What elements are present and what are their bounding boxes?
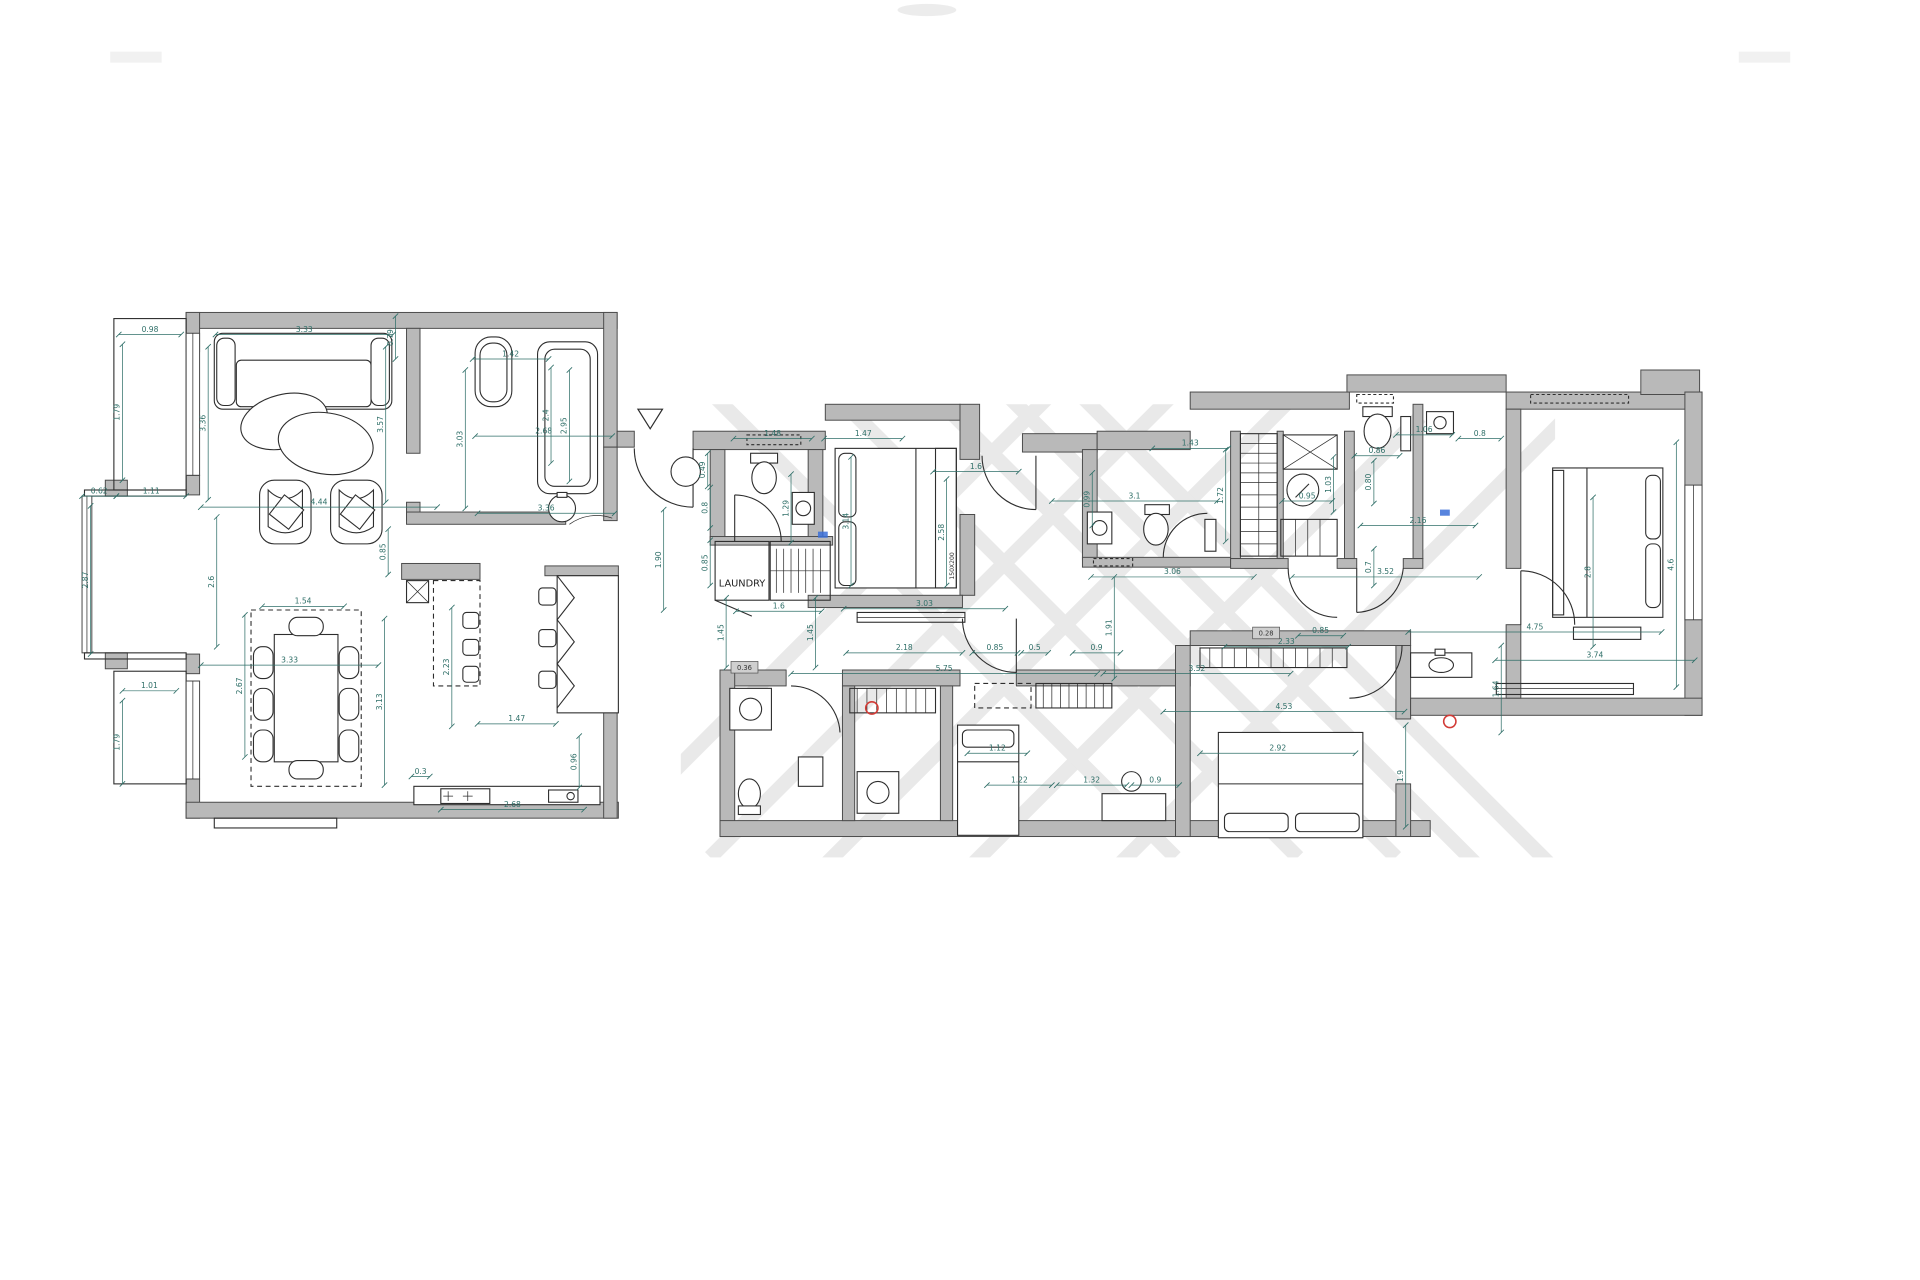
hanging-closet [770, 541, 830, 600]
dimension-label: 1.45 [806, 624, 815, 641]
wall-left-block-top [186, 312, 617, 328]
bar-stool [463, 666, 479, 682]
bar-stool [539, 630, 556, 647]
armchair [331, 480, 382, 544]
pillow [1646, 544, 1661, 608]
dimension-label: 3.52 [1189, 664, 1206, 673]
dimension-label: 0.49 [698, 461, 707, 478]
dimension-label: 2.95 [560, 417, 569, 434]
dimension-label: 3.33 [296, 325, 313, 334]
balcony-top-left [114, 319, 200, 490]
radiator [1401, 417, 1411, 451]
dining-chair [289, 617, 323, 635]
kitchen-sink [549, 790, 578, 802]
plan-label: 0.36 [737, 664, 752, 672]
dimension-label: 2.8 [1583, 566, 1592, 578]
plan-label: LAUNDRY [719, 579, 766, 590]
dimension-label: 2.67 [235, 677, 244, 694]
door-arc [735, 495, 782, 542]
small-sink [798, 757, 822, 786]
dimension-label: 2.23 [442, 658, 451, 675]
window-bay [82, 490, 186, 659]
dimension-label: 1.9 [1396, 770, 1405, 782]
dimension-label: 0.80 [1364, 473, 1373, 490]
dimension-label: 3.13 [375, 693, 384, 710]
dimension-label: 3.57 [376, 416, 385, 433]
plan-label: 0.28 [1259, 630, 1274, 638]
dimension-label: 1.6 [773, 602, 785, 611]
kitchen-island-counter [402, 563, 480, 579]
dining-table [274, 634, 338, 761]
dimension-label: 3.33 [281, 655, 298, 664]
dining-area [251, 610, 361, 786]
dimension-label: 0.85 [1312, 626, 1329, 635]
dimension-label: 0.9 [1090, 643, 1102, 652]
laundry-room [715, 541, 769, 600]
wardrobe [1036, 683, 1112, 707]
scan-artifacts [110, 4, 1790, 63]
dimension-label: 1.06 [1416, 425, 1433, 434]
blue-tick-marker [1440, 510, 1450, 516]
pillow [1296, 813, 1360, 831]
dimension-label: 3.52 [1377, 567, 1394, 576]
dimension-label: 4.75 [1526, 622, 1543, 631]
toilet [752, 462, 776, 494]
dimension-label: 2.58 [937, 524, 946, 541]
dimension-label: 0.62 [91, 486, 108, 495]
dimension-label: 5.75 [936, 664, 953, 673]
dimension-label: 3.06 [1164, 567, 1181, 576]
dimension-label: 0.85 [701, 554, 710, 571]
vent [1357, 394, 1394, 403]
vanity [1087, 512, 1111, 544]
dimension-label: 1.64 [1492, 680, 1501, 697]
dimension-label: 3.03 [916, 599, 933, 608]
dimension-label: 0.96 [569, 753, 578, 770]
dimension-label: 0.3 [415, 767, 427, 776]
dimension-label: 3.14 [841, 513, 850, 530]
dimension-label: 0.7 [1364, 561, 1373, 573]
dimension-label: 2.4 [541, 409, 550, 421]
dimension-label: 1.91 [1105, 619, 1114, 636]
dimension-label: 2.33 [1278, 637, 1295, 646]
bathtub [475, 337, 512, 407]
dimension-label: 1.29 [781, 500, 790, 517]
kitchen [402, 563, 619, 804]
dimension-label: 0.9 [1149, 775, 1161, 784]
dimension-label: 1.48 [764, 429, 781, 438]
dimension-label: 1.47 [855, 429, 872, 438]
dining-chair [289, 761, 323, 779]
pillow [839, 453, 856, 517]
dimension-label: 1.12 [989, 744, 1006, 753]
bar-stool [539, 588, 556, 605]
desk [1102, 794, 1166, 821]
round-table [671, 457, 700, 486]
dimension-label: 0.85 [378, 543, 387, 560]
dimension-label: 1.79 [113, 734, 122, 751]
dimension-label: 3.36 [198, 415, 207, 432]
dimension-label: 0.5 [1029, 643, 1041, 652]
dimension-label: 1.01 [141, 681, 158, 690]
master-bedroom [1496, 394, 1663, 694]
bar-stool [463, 639, 479, 655]
dimension-label: 1.43 [1182, 439, 1199, 448]
dimension-label: 2.68 [504, 800, 521, 809]
bar-stool [539, 671, 556, 688]
dimension-label: 1.03 [1324, 476, 1333, 493]
toilet [1364, 414, 1391, 448]
dimension-label: 4.53 [1275, 702, 1292, 711]
dimension-label: 0.95 [1299, 491, 1316, 500]
pillow [1224, 813, 1288, 831]
red-circle-marker [1444, 715, 1456, 727]
dimension-label: 4.6 [1667, 558, 1676, 570]
toilet [1144, 513, 1168, 545]
pillow [839, 522, 856, 586]
blue-tick-marker [818, 532, 828, 538]
dimension-label: 1.32 [1083, 775, 1100, 784]
dimension-label: 0.8 [1474, 429, 1486, 438]
floor-plan-page: 0.981.793.330.793.573.361.423.032.682.42… [0, 0, 1920, 1280]
entry-triangle [638, 409, 662, 429]
dimension-label: 1.72 [1216, 487, 1225, 504]
dimension-label: 1.90 [654, 551, 663, 568]
vanity [1411, 653, 1472, 677]
kitchen-tall-counter [557, 576, 618, 713]
dimension-label: 0.79 [386, 329, 395, 346]
dimension-label: 2.16 [1410, 516, 1427, 525]
dimension-label: 1.45 [716, 624, 725, 641]
plan-label: 150X200 [949, 552, 956, 580]
dimension-label: 1.42 [502, 349, 519, 358]
dimension-label: 0.85 [986, 643, 1003, 652]
dimension-label: 2.6 [207, 576, 216, 588]
exterior-unit [214, 818, 336, 828]
dimension-label: 3.74 [1586, 651, 1603, 660]
dimension-label: 3.03 [456, 431, 465, 448]
dimension-label: 2.68 [535, 426, 552, 435]
dimension-label: 1.6 [970, 462, 982, 471]
dimension-label: 4.44 [311, 497, 328, 506]
pillow [1646, 475, 1661, 539]
towel-rail [1205, 519, 1216, 551]
dimension-label: 2.87 [81, 571, 90, 588]
dimension-label: 1.54 [295, 597, 312, 606]
armchair [260, 480, 311, 544]
floor-plan-drawing: 0.981.793.330.793.573.361.423.032.682.42… [0, 0, 1920, 1280]
chair [1122, 772, 1142, 792]
shower [730, 688, 772, 730]
dimension-label: 1.11 [143, 486, 160, 495]
bench [1573, 627, 1640, 639]
shower [857, 772, 899, 814]
dimension-label: 3.1 [1128, 491, 1140, 500]
dimension-label: 0.98 [142, 325, 159, 334]
dimension-label: 3.36 [538, 504, 555, 513]
toilet [738, 779, 760, 808]
dimension-label: 0.8 [701, 502, 710, 514]
dimension-label: 0.99 [1083, 491, 1092, 508]
dimension-label: 0.86 [1369, 446, 1386, 455]
dimension-label: 1.22 [1011, 775, 1028, 784]
entry [634, 409, 700, 507]
dimension-label: 1.47 [508, 714, 525, 723]
dimension-label: 2.18 [896, 643, 913, 652]
living-room [214, 333, 392, 544]
bar-stool [463, 612, 479, 628]
dimension-label: 1.79 [113, 404, 122, 421]
dimension-label: 2.92 [1269, 744, 1286, 753]
